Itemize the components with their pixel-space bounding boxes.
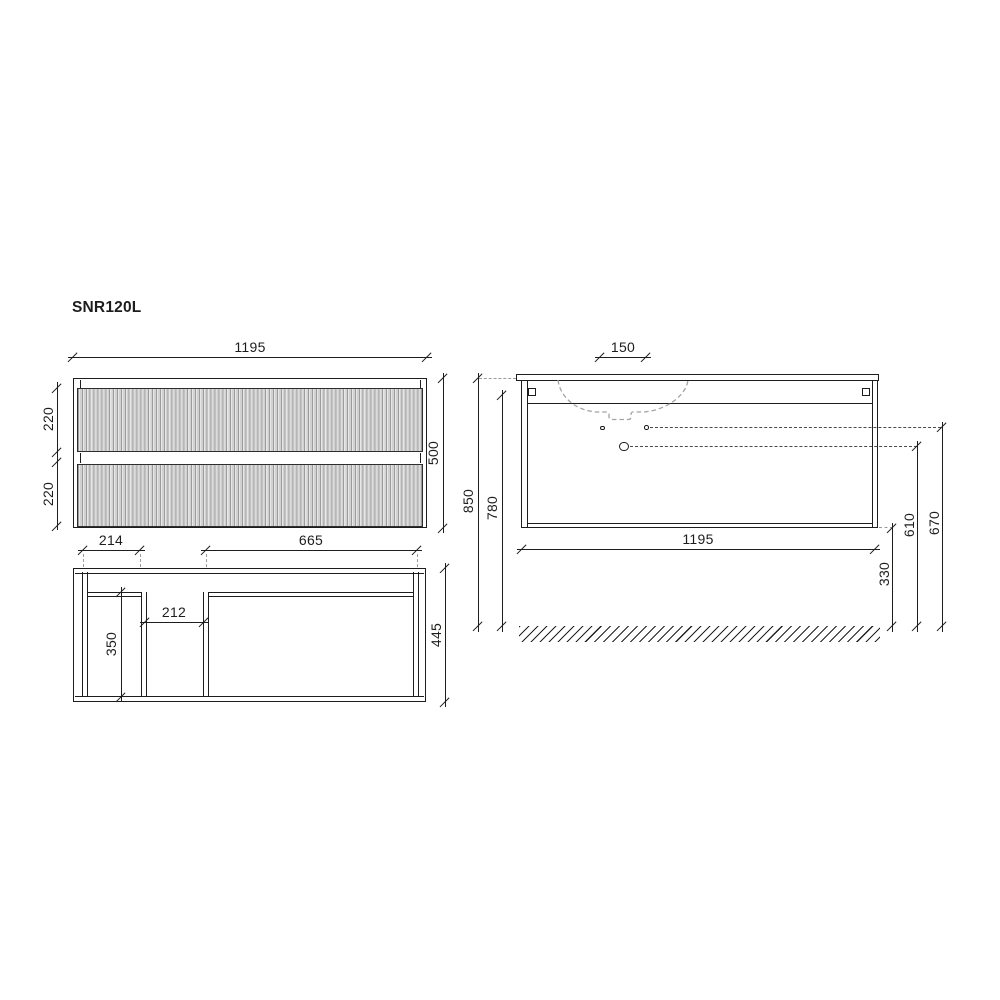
installation-width-dim-label: 1195 [682, 531, 713, 547]
overflow-hole-right [644, 425, 649, 430]
front-gap-notch-right [420, 453, 421, 463]
leader-drain-height [630, 446, 917, 447]
mounting-height-dim-label: 780 [484, 496, 500, 520]
front-height-dim-label: 500 [425, 441, 441, 465]
plan-back-wall-right [208, 596, 414, 597]
technical-drawing-canvas: SNR120L 1195 220 220 500 214 [0, 0, 1000, 1000]
dim-line [68, 357, 432, 358]
dim-line [445, 563, 446, 707]
plan-divider-right [203, 592, 204, 696]
plan-back-wall-right [208, 592, 414, 593]
overflow-hole-left [600, 426, 605, 431]
plan-left-wall [87, 572, 88, 696]
overflow-height-dim-label: 670 [926, 511, 942, 535]
front-top-strip-notch-right [420, 380, 421, 388]
plan-right-wall [418, 572, 419, 696]
plan-depth-dim-label: 445 [428, 623, 444, 647]
drain-height-dim-label: 610 [901, 513, 917, 537]
dim-line [443, 373, 444, 533]
front-gap-notch-left [80, 453, 81, 463]
plan-gap-dim-label: 212 [162, 604, 186, 620]
plan-divider-left [141, 592, 142, 696]
cabinet-right-panel-inner [872, 381, 873, 527]
wall-bracket-right [862, 388, 870, 396]
dim-line [942, 422, 943, 632]
total-height-dim-label: 850 [460, 489, 476, 513]
basin-outline [552, 379, 692, 425]
dim-line [517, 549, 880, 550]
plan-left-section-dim-label: 214 [99, 532, 123, 548]
front-bottom-drawer-dim-label: 220 [40, 482, 56, 506]
front-drawer-top [77, 388, 423, 452]
dim-line [121, 587, 122, 702]
plan-inner-bottom-edge [75, 696, 424, 697]
dim-line [478, 373, 479, 632]
drain-hole [619, 442, 629, 452]
dim-line [78, 550, 145, 551]
plan-back-wall-left [87, 592, 142, 593]
plan-divider-left [146, 592, 147, 696]
front-top-drawer-dim-label: 220 [40, 407, 56, 431]
front-drawer-bottom [77, 464, 423, 527]
bottom-clearance-dim-label: 330 [876, 562, 892, 586]
ground-hatch [519, 626, 880, 642]
front-top-strip-notch-left [80, 380, 81, 388]
dim-line [502, 390, 503, 632]
plan-inner-top-edge [75, 573, 424, 574]
wall-bracket-left [528, 388, 536, 396]
dim-line [892, 523, 893, 632]
plan-left-wall [82, 572, 83, 696]
plan-back-wall-left [87, 596, 142, 597]
dim-line [917, 441, 918, 632]
cabinet-bottom-inner [527, 523, 872, 524]
hole-spacing-dim-label: 150 [611, 339, 635, 355]
dim-line [140, 622, 209, 623]
leader-overflow-height [650, 427, 941, 428]
drawing-title: SNR120L [72, 299, 141, 317]
plan-right-wall [413, 572, 414, 696]
plan-inner-depth-dim-label: 350 [103, 632, 119, 656]
plan-right-section-dim-label: 665 [299, 532, 323, 548]
dim-line [201, 550, 422, 551]
leader-countertop [479, 378, 516, 379]
front-width-dim-label: 1195 [234, 339, 265, 355]
dim-line [57, 382, 58, 530]
plan-divider-right [208, 592, 209, 696]
